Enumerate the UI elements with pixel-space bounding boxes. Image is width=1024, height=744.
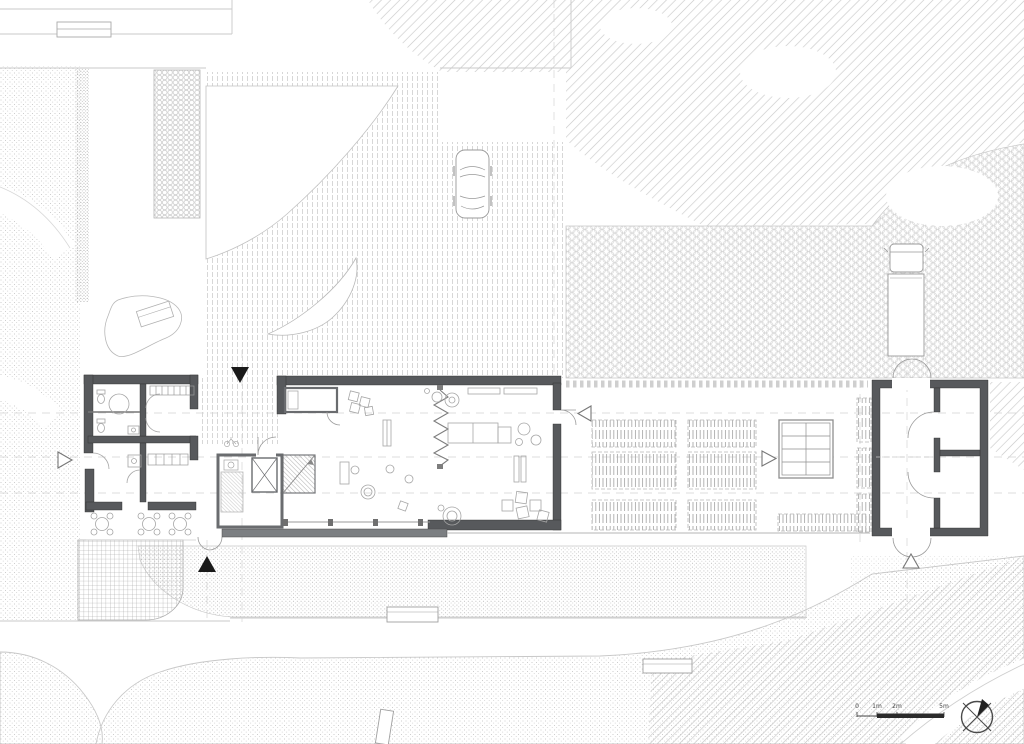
scale-label-2m: 2m (892, 703, 902, 710)
storeroom (285, 388, 340, 425)
stair (283, 455, 315, 493)
building-core-kitchen-stair (218, 437, 315, 527)
road-bench (57, 22, 111, 37)
lawn-west (0, 66, 80, 620)
delivery-truck-icon (884, 244, 929, 356)
terrace-tables (86, 513, 196, 540)
grate-pavement (78, 540, 183, 620)
scale-label-1m: 1m (872, 703, 882, 710)
parked-car-icon (454, 150, 491, 218)
gravel-strip (138, 546, 806, 617)
folding-partition (434, 385, 448, 469)
door-marker-hall-east (578, 406, 591, 421)
skylight-grid (779, 420, 833, 478)
building-west-wing (84, 375, 198, 512)
building-garage (872, 359, 988, 557)
door-marker-courtyard (762, 451, 776, 466)
hall-furniture (340, 388, 549, 525)
terrace-edge-band (222, 529, 447, 537)
paving-circle-patch (154, 70, 200, 218)
landscape (0, 0, 1024, 744)
scale-label-0: 0 (855, 703, 859, 710)
shaft (252, 458, 277, 492)
hedge (75, 68, 89, 302)
floor-plan-canvas: 0 1m 2m 5m (0, 0, 1024, 744)
lawn-southwest (0, 652, 102, 744)
east-door (561, 410, 576, 425)
site-plan: 0 1m 2m 5m (0, 0, 1024, 744)
scale-label-5m: 5m (939, 703, 949, 710)
